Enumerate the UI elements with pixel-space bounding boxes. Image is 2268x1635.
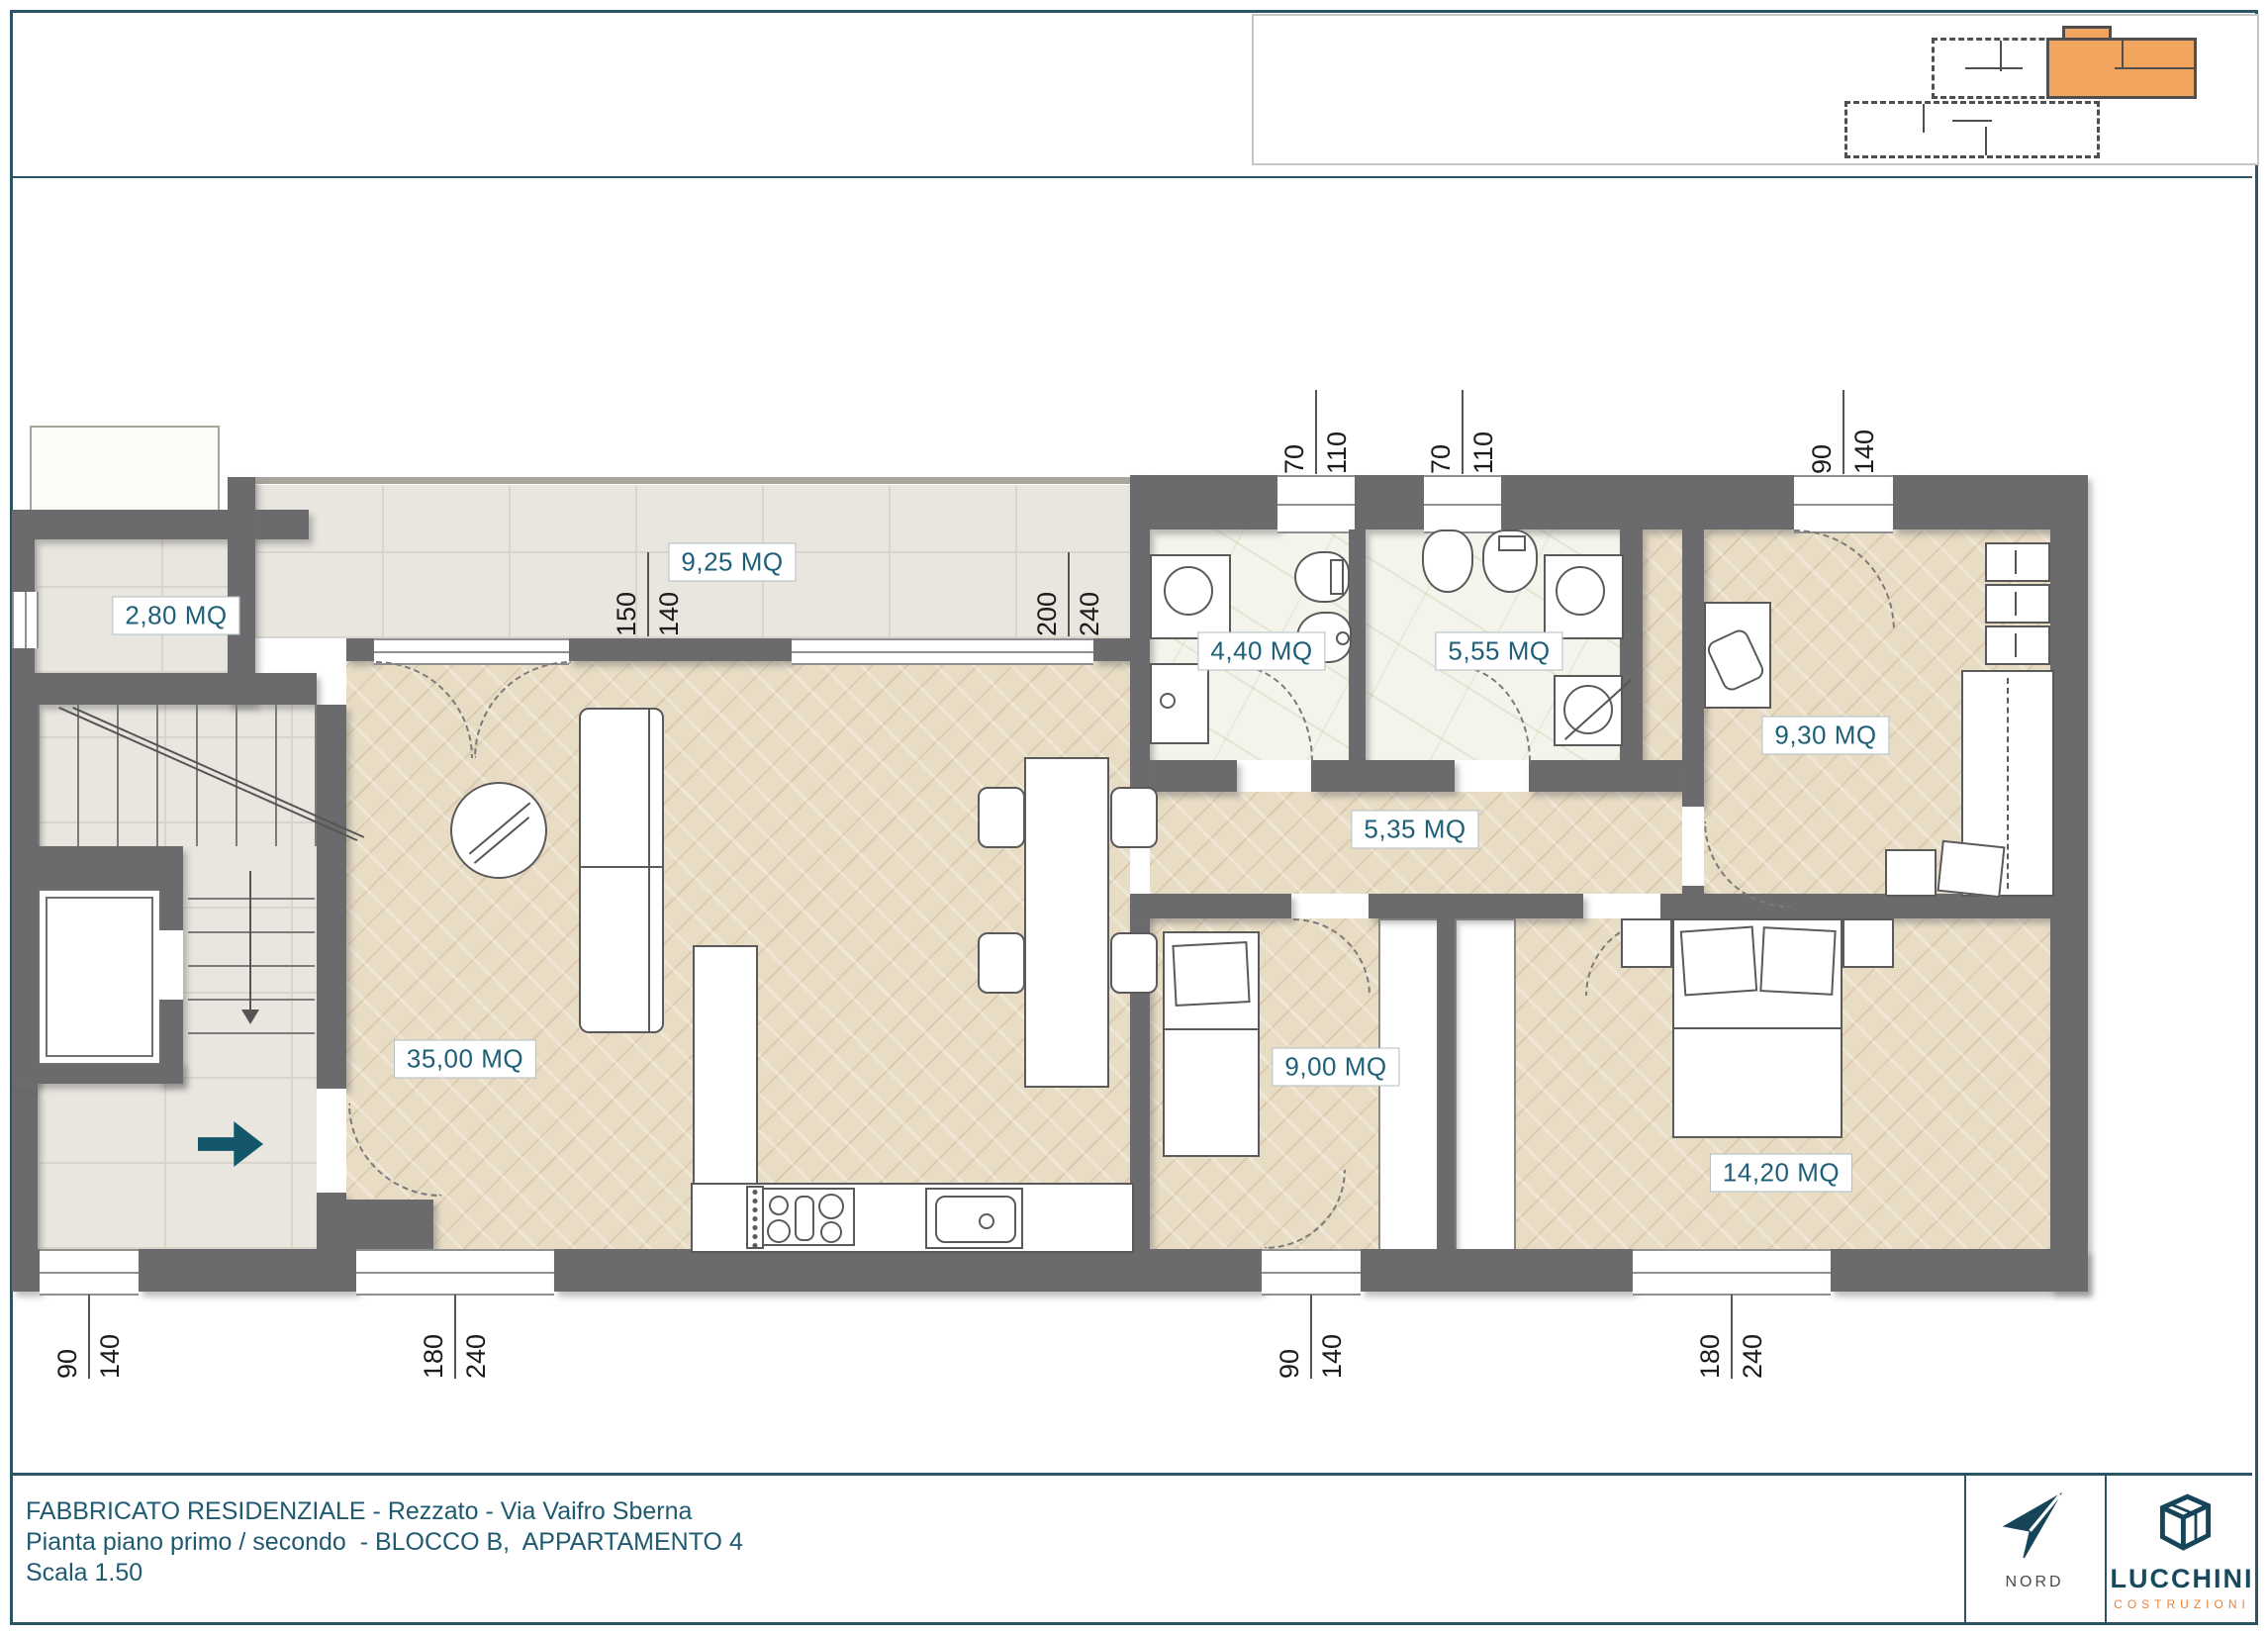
wall xyxy=(1130,475,1150,638)
window xyxy=(1262,1249,1361,1296)
wall xyxy=(1831,1249,2088,1292)
wardrobe-unit xyxy=(1985,584,2050,624)
title-line2: Pianta piano primo / secondo - BLOCCO B,… xyxy=(26,1527,743,1558)
bidet xyxy=(1422,529,1473,593)
wall xyxy=(346,1200,433,1249)
wall xyxy=(1501,475,1794,529)
washbasin xyxy=(1556,566,1605,616)
dim-bottom-3: 90140 xyxy=(1276,1295,1346,1379)
dim-bottom-4: 180240 xyxy=(1697,1295,1766,1379)
toilet xyxy=(1294,551,1350,603)
wall xyxy=(12,1249,40,1292)
pillow xyxy=(1172,941,1250,1007)
dim-bottom-2: 180240 xyxy=(421,1295,490,1379)
titleblock-divider xyxy=(1964,1476,1966,1625)
floor-plan: 2,80 MQ 9,25 MQ 35,00 MQ 4,40 MQ 5,55 MQ… xyxy=(0,0,2268,1475)
adjacent-balcony-fragment xyxy=(30,426,220,514)
nightstand xyxy=(1843,918,1894,968)
elevator-door-gap xyxy=(157,930,183,1000)
terrace-parapet xyxy=(255,477,1130,484)
single-bed xyxy=(1163,931,1260,1157)
wall xyxy=(1093,638,1130,661)
wall xyxy=(1682,529,1704,807)
wall xyxy=(2050,475,2088,1292)
dim-mid-1: 150140 xyxy=(614,552,683,636)
dim-bottom-1: 90140 xyxy=(54,1295,124,1379)
dining-table xyxy=(1024,757,1109,1088)
room-label-bedroom2: 9,00 MQ xyxy=(1272,1048,1399,1087)
wall xyxy=(1437,918,1455,1249)
room-label-terrace: 9,25 MQ xyxy=(668,543,796,582)
wall xyxy=(346,638,374,661)
wall xyxy=(569,638,792,661)
side-table xyxy=(1885,849,1937,897)
window xyxy=(374,638,569,665)
logo-subtitle: COSTRUZIONI xyxy=(2108,1597,2256,1611)
cooktop xyxy=(757,1188,855,1246)
dim-top-2: 70110 xyxy=(1428,390,1497,474)
nightstand xyxy=(1621,918,1672,968)
wardrobe-unit xyxy=(1985,625,2050,665)
wall xyxy=(228,477,255,705)
wall xyxy=(1130,638,1150,802)
dim-mid-2: 200240 xyxy=(1034,552,1103,636)
room-label-bath1: 4,40 MQ xyxy=(1197,632,1325,671)
cushion xyxy=(1937,840,2005,898)
dim-top-1: 70110 xyxy=(1281,390,1351,474)
pillow xyxy=(1680,925,1757,996)
wall xyxy=(1355,475,1424,529)
logo-name: LUCCHINI xyxy=(2108,1564,2256,1594)
window xyxy=(356,1249,554,1296)
dim-top-3: 90140 xyxy=(1809,390,1878,474)
entry-door-gap xyxy=(317,1089,346,1193)
wall xyxy=(1529,760,1682,792)
kitchen-sink xyxy=(925,1188,1023,1249)
washbasin xyxy=(1164,566,1213,616)
wall xyxy=(1369,894,1583,918)
shower-box xyxy=(1554,675,1623,746)
side-table xyxy=(450,782,547,879)
wall xyxy=(139,1249,356,1292)
logo-cube-icon xyxy=(2147,1483,2217,1558)
stairs-upper-flight xyxy=(38,705,317,846)
sofa xyxy=(579,708,664,1033)
room-label-bath2: 5,55 MQ xyxy=(1435,632,1562,671)
stair-direction-line xyxy=(249,871,251,1014)
wall xyxy=(1893,475,2050,529)
wardrobe-unit xyxy=(1985,542,2050,582)
wardrobe-bedroom3 xyxy=(1455,918,1516,1253)
chair xyxy=(1110,787,1158,848)
kitchen-tall-units xyxy=(693,945,758,1189)
wall xyxy=(1361,1249,1633,1292)
north-arrow-icon xyxy=(1997,1487,2076,1566)
wall xyxy=(554,1249,1262,1292)
titleblock-separator-line xyxy=(10,1473,2252,1476)
wall xyxy=(12,846,183,889)
double-bed xyxy=(1672,918,1843,1138)
bedroom1-door-gap xyxy=(1682,807,1704,886)
title-line3: Scala 1.50 xyxy=(26,1558,743,1588)
room-label-bedroom3: 14,20 MQ xyxy=(1710,1154,1852,1193)
wall xyxy=(1311,760,1455,792)
toilet xyxy=(1482,529,1538,593)
chair xyxy=(978,787,1025,848)
elevator-cab xyxy=(38,889,161,1065)
chair xyxy=(1110,932,1158,994)
title-line1: FABBRICATO RESIDENZIALE - Rezzato - Via … xyxy=(26,1496,743,1527)
wall xyxy=(1130,894,1291,918)
wall xyxy=(1150,475,1277,529)
wall xyxy=(1150,760,1237,792)
window xyxy=(792,638,1093,665)
wall xyxy=(12,510,309,539)
window xyxy=(1633,1249,1831,1296)
window xyxy=(40,1249,139,1296)
pillow xyxy=(1759,926,1836,996)
north-label: NORD xyxy=(1995,1574,2074,1591)
window xyxy=(1277,475,1355,533)
wall xyxy=(317,1193,346,1249)
elevator-wall xyxy=(12,889,38,1084)
room-label-hallway: 5,35 MQ xyxy=(1351,811,1478,849)
room-label-balcony: 2,80 MQ xyxy=(112,597,239,635)
room-label-living: 35,00 MQ xyxy=(394,1040,536,1079)
titleblock-divider xyxy=(2105,1476,2107,1625)
window xyxy=(12,592,39,648)
shower-tray xyxy=(1150,663,1209,744)
window xyxy=(1424,475,1501,533)
room-label-bedroom1: 9,30 MQ xyxy=(1761,717,1889,755)
wall xyxy=(317,705,346,1089)
chair xyxy=(978,932,1025,994)
window xyxy=(1794,475,1893,533)
cooktop-knobs xyxy=(746,1186,764,1249)
wall xyxy=(12,673,317,705)
titleblock-text: FABBRICATO RESIDENZIALE - Rezzato - Via … xyxy=(26,1496,743,1588)
wall xyxy=(1660,894,2050,918)
